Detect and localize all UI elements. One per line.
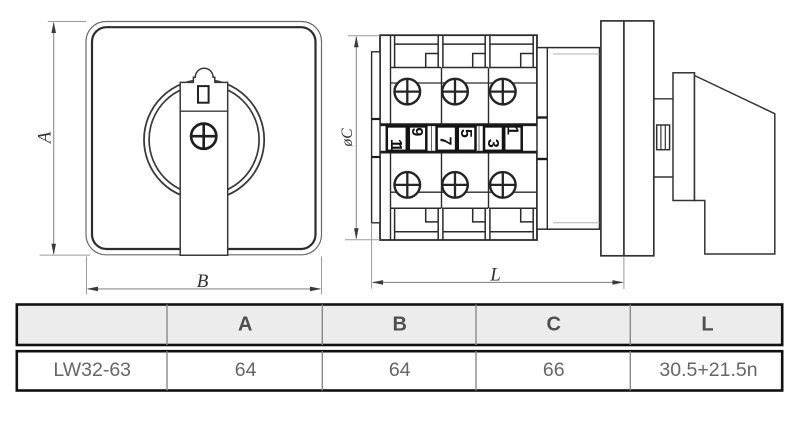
svg-text:9: 9 <box>408 127 425 136</box>
svg-text:3: 3 <box>484 139 501 148</box>
svg-text:64: 64 <box>235 359 257 381</box>
svg-text:L: L <box>701 314 713 336</box>
svg-text:B: B <box>197 271 209 292</box>
svg-text:L: L <box>489 265 501 286</box>
svg-text:66: 66 <box>543 359 565 381</box>
svg-text:LW32-63: LW32-63 <box>53 359 131 381</box>
svg-text:30.5+21.5n: 30.5+21.5n <box>659 359 757 381</box>
svg-text:5: 5 <box>457 129 474 138</box>
svg-text:øC: øC <box>339 128 356 148</box>
svg-text:7: 7 <box>437 137 454 146</box>
svg-text:A: A <box>36 131 56 145</box>
svg-text:64: 64 <box>389 359 411 381</box>
svg-text:B: B <box>392 314 406 336</box>
svg-text:A: A <box>238 314 252 336</box>
svg-text:C: C <box>546 314 560 336</box>
svg-text:1: 1 <box>503 126 520 135</box>
